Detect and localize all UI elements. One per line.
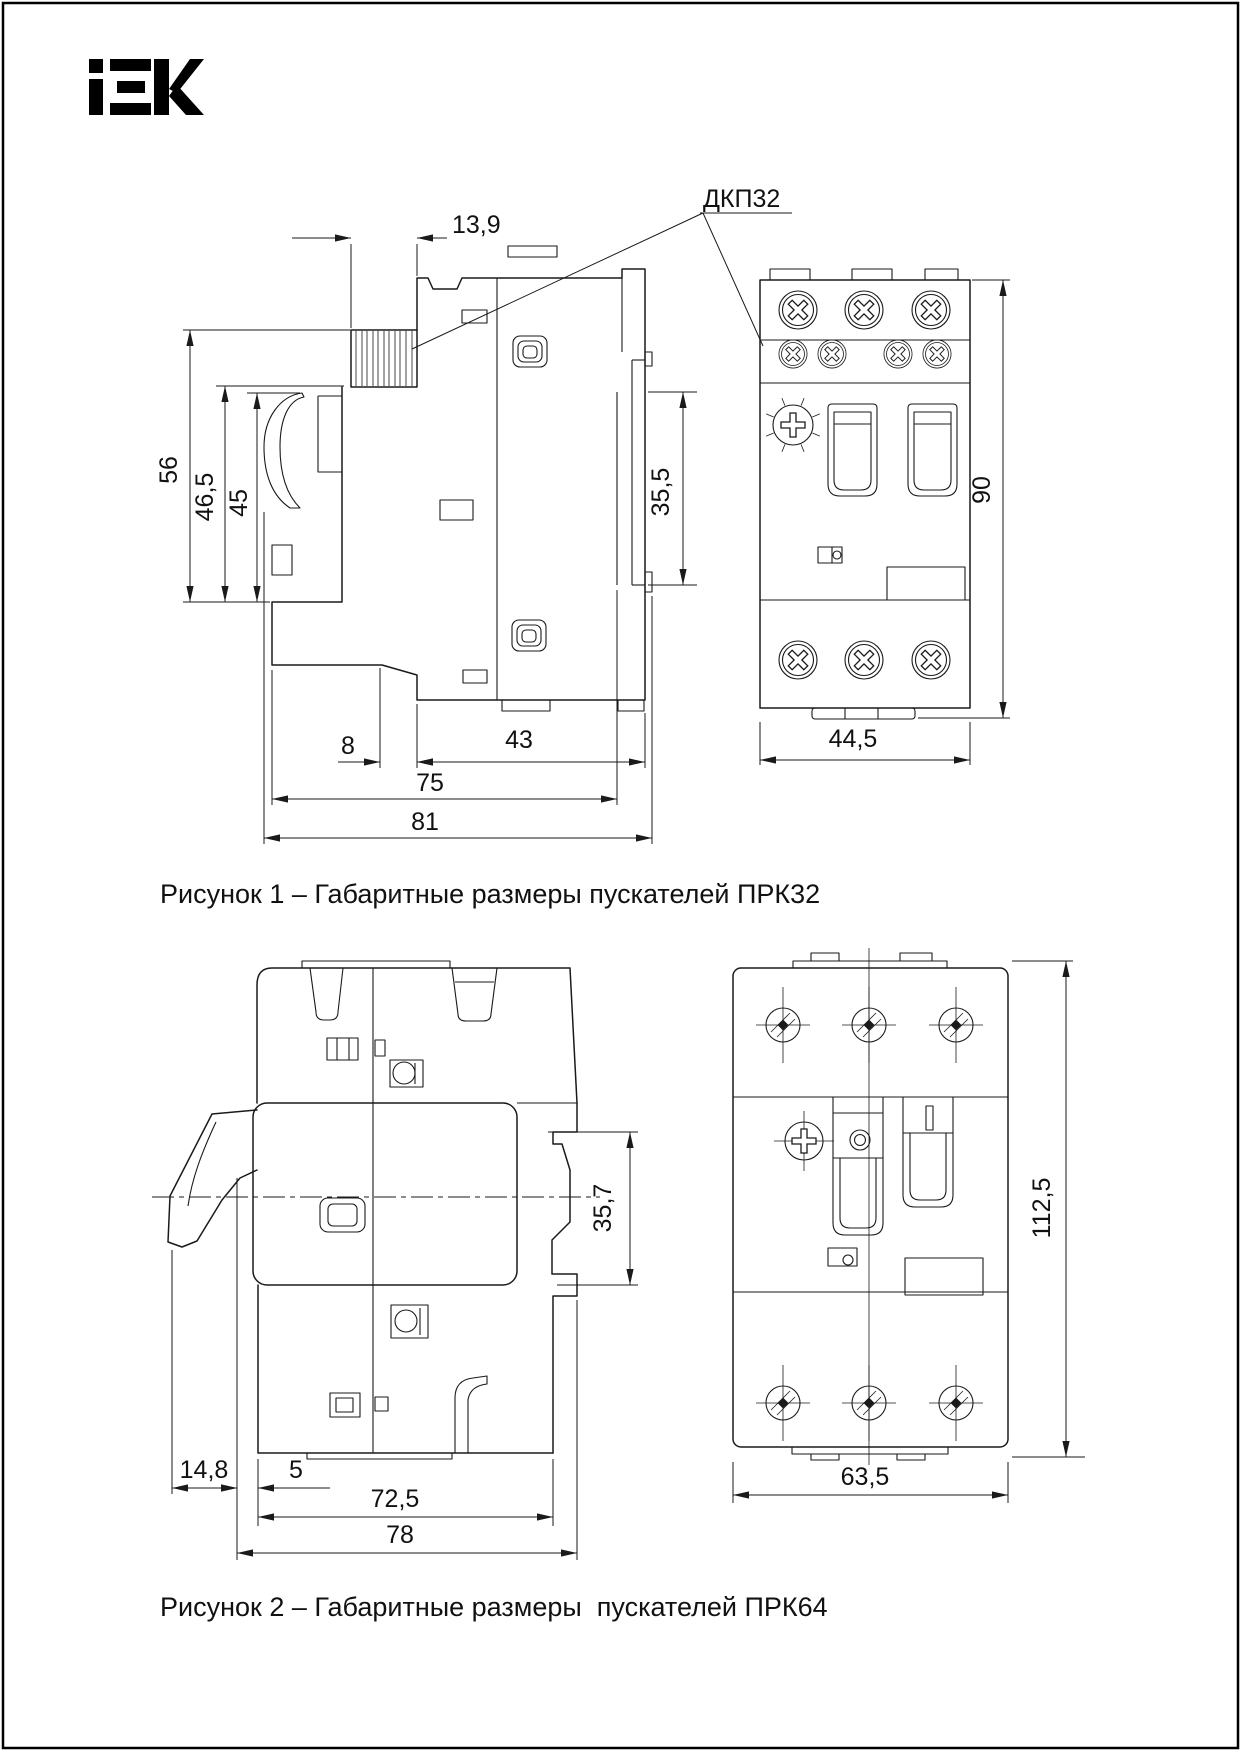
dim-8: 8: [341, 732, 355, 760]
fig1-front-view: [760, 269, 970, 719]
dim-43: 43: [505, 726, 533, 754]
iek-logo: [89, 59, 204, 115]
dkp32-label: ДКП32: [703, 185, 780, 213]
dim-35-7: 35,7: [589, 1184, 617, 1233]
fig1-dimensions: 13,9 56 46,5 45 35,5 8 43: [155, 211, 1010, 844]
figure2-caption: Рисунок 2 – Габаритные размеры пускателе…: [160, 1592, 828, 1623]
dim-78: 78: [386, 1521, 414, 1549]
dim-5: 5: [289, 1456, 303, 1484]
dim-63-5: 63,5: [841, 1463, 890, 1491]
dim-46-5: 46,5: [191, 473, 219, 522]
dkp32-callout: ДКП32: [412, 185, 792, 349]
dim-72-5: 72,5: [371, 1485, 420, 1513]
dim-112-5: 112,5: [1028, 1178, 1056, 1239]
fig2-front-view: [733, 948, 1008, 1465]
dim-45: 45: [225, 489, 253, 517]
sheet-border: [3, 3, 1238, 1748]
figure1-caption: Рисунок 1 – Габаритные размеры пускателе…: [160, 879, 820, 910]
figure2-drawing: 35,7 14,8 5 72,5 78 112,5: [152, 948, 1085, 1560]
fig2-dimensions: 35,7 14,8 5 72,5 78 112,5: [172, 961, 1085, 1560]
dim-90: 90: [968, 476, 996, 504]
dim-14-8: 14,8: [180, 1456, 229, 1484]
dim-56: 56: [155, 456, 183, 484]
dim-35-5: 35,5: [647, 468, 675, 517]
dim-75: 75: [416, 769, 444, 797]
fig1-side-view: [264, 246, 652, 711]
figure1-drawing: ДКП32 13,9 56 46,5 45: [155, 185, 1010, 844]
dim-13-9: 13,9: [452, 211, 501, 239]
fig2-side-view: [152, 961, 600, 1459]
dim-81: 81: [411, 808, 439, 836]
technical-drawing: ДКП32 13,9 56 46,5 45: [0, 0, 1241, 1751]
dim-44-5: 44,5: [829, 725, 878, 753]
datasheet-page: ДКП32 13,9 56 46,5 45: [0, 0, 1241, 1751]
